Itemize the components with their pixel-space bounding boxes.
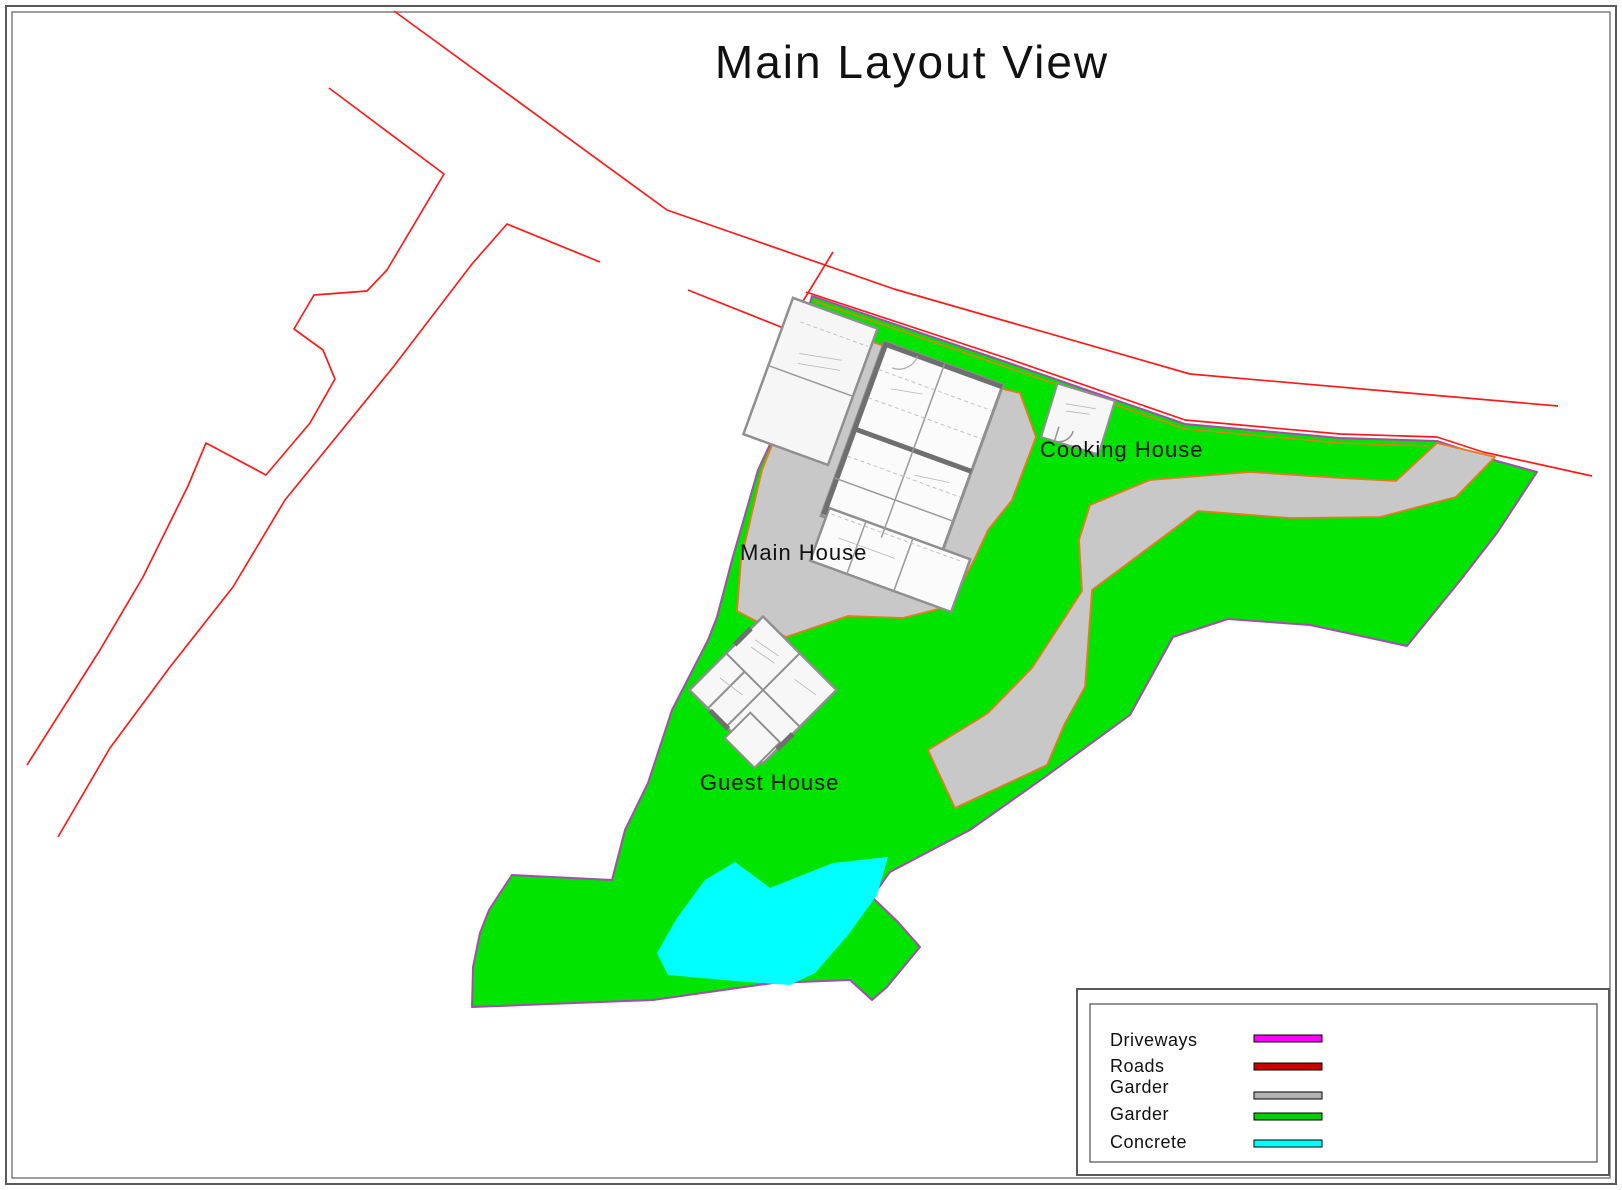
layout-canvas: Main Layout View: [0, 0, 1622, 1190]
legend-label-garder-gray: Garder: [1110, 1077, 1169, 1097]
legend-label-garder-green: Garder: [1110, 1104, 1169, 1124]
legend-swatch-driveways: [1254, 1035, 1322, 1042]
label-cooking-house: Cooking House: [1040, 437, 1203, 462]
label-main-house: Main House: [740, 540, 867, 565]
legend-label-driveways: Driveways: [1110, 1030, 1198, 1050]
label-guest-house: Guest House: [700, 770, 839, 795]
cad-layout-window: Main Layout View: [0, 0, 1622, 1190]
legend-swatch-roads: [1254, 1063, 1322, 1070]
road-line-west-right: [58, 224, 600, 837]
legend: Driveways Roads Garder Garder Concrete: [1077, 989, 1609, 1175]
legend-swatch-concrete: [1254, 1140, 1322, 1147]
legend-label-concrete: Concrete: [1110, 1132, 1187, 1152]
page-title: Main Layout View: [715, 36, 1109, 88]
legend-swatch-garder-green: [1254, 1113, 1322, 1120]
road-line-west-left: [27, 88, 444, 765]
legend-label-roads: Roads: [1110, 1056, 1165, 1076]
legend-swatch-garder-gray: [1254, 1092, 1322, 1099]
